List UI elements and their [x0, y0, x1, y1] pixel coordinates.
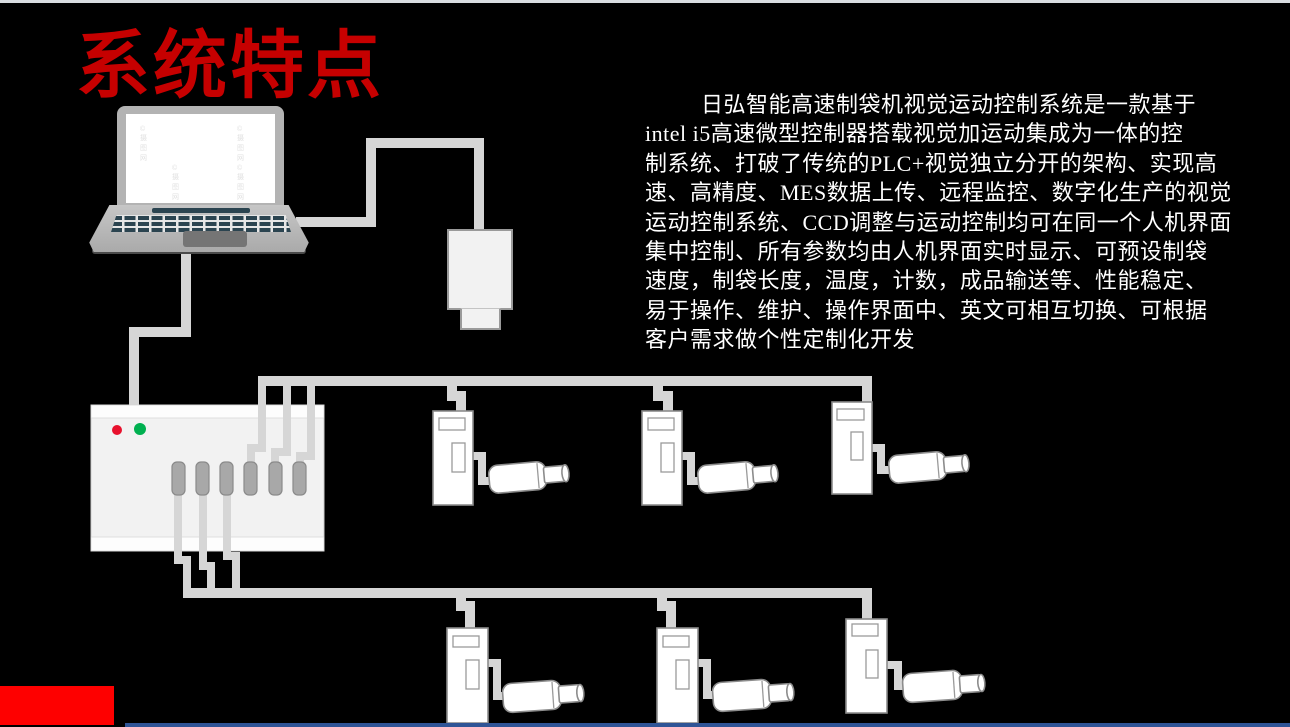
motor-shaft-end — [576, 684, 584, 701]
laptop-keyboard — [111, 215, 291, 232]
accent-red-block — [0, 686, 114, 725]
servo-drive-2 — [642, 411, 682, 505]
cable-top-bus — [258, 381, 867, 406]
status-led-green — [134, 423, 146, 435]
io-port-5 — [269, 462, 282, 495]
controller-bottom-strip — [91, 537, 324, 551]
watermark-text: © 摄图网 — [237, 126, 244, 163]
camera-lens — [460, 308, 501, 330]
laptop-screen-panel — [126, 114, 275, 203]
motor-shaft-end — [786, 683, 794, 700]
io-port-4 — [244, 462, 257, 495]
footer-blue-bar — [125, 723, 1290, 727]
description-line: 易于操作、维护、操作界面中、英文可相互切换、可根据 — [645, 296, 1275, 325]
laptop-speaker-bar — [152, 208, 250, 213]
description-line: 运动控制系统、CCD调整与运动控制均可在同一个人机界面 — [645, 208, 1275, 237]
cable-laptop-to-controller — [134, 250, 186, 412]
description-line: intel i5高速微型控制器搭载视觉加运动集成为一体的控 — [645, 119, 1275, 148]
io-port-3 — [220, 462, 233, 495]
top-edge-strip — [0, 0, 1290, 3]
description-line: 速度，制袋长度，温度，计数，成品输送等、性能稳定、 — [645, 266, 1275, 295]
slide-canvas: © 摄图网 © 摄图网 © 摄图网 © 摄图网 系统特点 日弘智能高速制袋机视觉… — [0, 0, 1290, 727]
laptop-trackpad — [183, 231, 247, 247]
motor-shaft-end — [977, 674, 985, 691]
description-line: 速、高精度、MES数据上传、远程监控、数字化生产的视觉 — [645, 178, 1275, 207]
motor-4 — [502, 678, 585, 713]
cable-bottom-bus-drop-1 — [461, 593, 470, 632]
description-text: 日弘智能高速制袋机视觉运动控制系统是一款基于intel i5高速微型控制器搭载视… — [645, 90, 1275, 355]
cable-bottom-bus-drop-2 — [662, 593, 671, 632]
servo-drive-1 — [433, 411, 473, 505]
watermark-text: © 摄图网 — [172, 165, 179, 202]
description-line: 制系统、打破了传统的PLC+视觉独立分开的架构、实现高 — [645, 149, 1275, 178]
cable-laptop-to-camera — [296, 143, 479, 236]
io-port-1 — [172, 462, 185, 495]
io-port-2 — [196, 462, 209, 495]
description-line: 日弘智能高速制袋机视觉运动控制系统是一款基于 — [645, 90, 1275, 119]
description-line: 集中控制、所有参数均由人机界面实时显示、可预设制袋 — [645, 237, 1275, 266]
description-line: 客户需求做个性定制化开发 — [645, 325, 1275, 354]
servo-drive-6 — [846, 619, 887, 713]
motor-2 — [697, 459, 779, 494]
watermark-text: © 摄图网 — [140, 126, 147, 163]
servo-drive-5 — [657, 628, 698, 723]
servo-drive-3 — [832, 402, 872, 494]
controller-unit — [91, 383, 324, 596]
motor-6 — [902, 668, 986, 703]
motor-3 — [888, 449, 970, 484]
io-port-6 — [293, 462, 306, 495]
servo-drive-4 — [447, 628, 488, 723]
drive-body — [832, 402, 872, 494]
slide-title: 系统特点 — [76, 6, 384, 113]
status-led-red — [112, 425, 122, 435]
watermark-text: © 摄图网 — [237, 165, 244, 202]
motor-5 — [712, 677, 795, 712]
camera-device — [447, 229, 513, 310]
motor-1 — [488, 459, 570, 494]
cable-bottom-bus — [183, 593, 867, 624]
